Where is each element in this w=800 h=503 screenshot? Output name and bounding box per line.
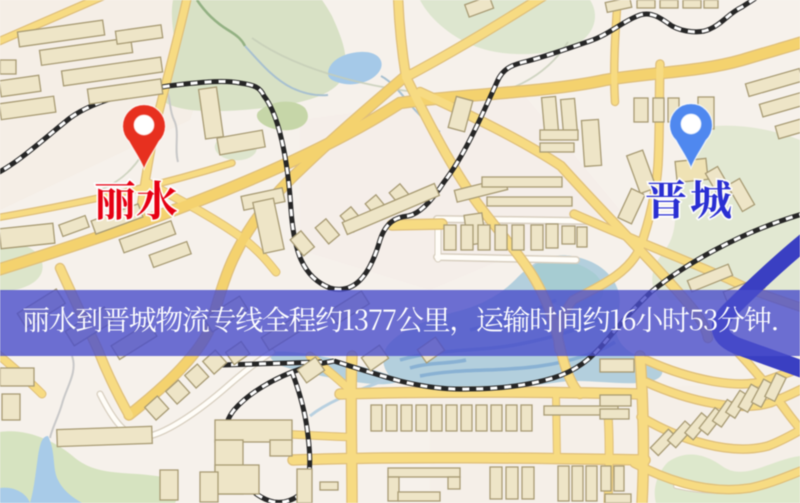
svg-text:丽水到晋城物流专线全程约1377公里，运输时间约16小时53: 丽水到晋城物流专线全程约1377公里，运输时间约16小时53分钟. [22,299,778,339]
svg-text:丽水: 丽水 [94,169,178,229]
svg-text:晋城: 晋城 [645,168,735,228]
